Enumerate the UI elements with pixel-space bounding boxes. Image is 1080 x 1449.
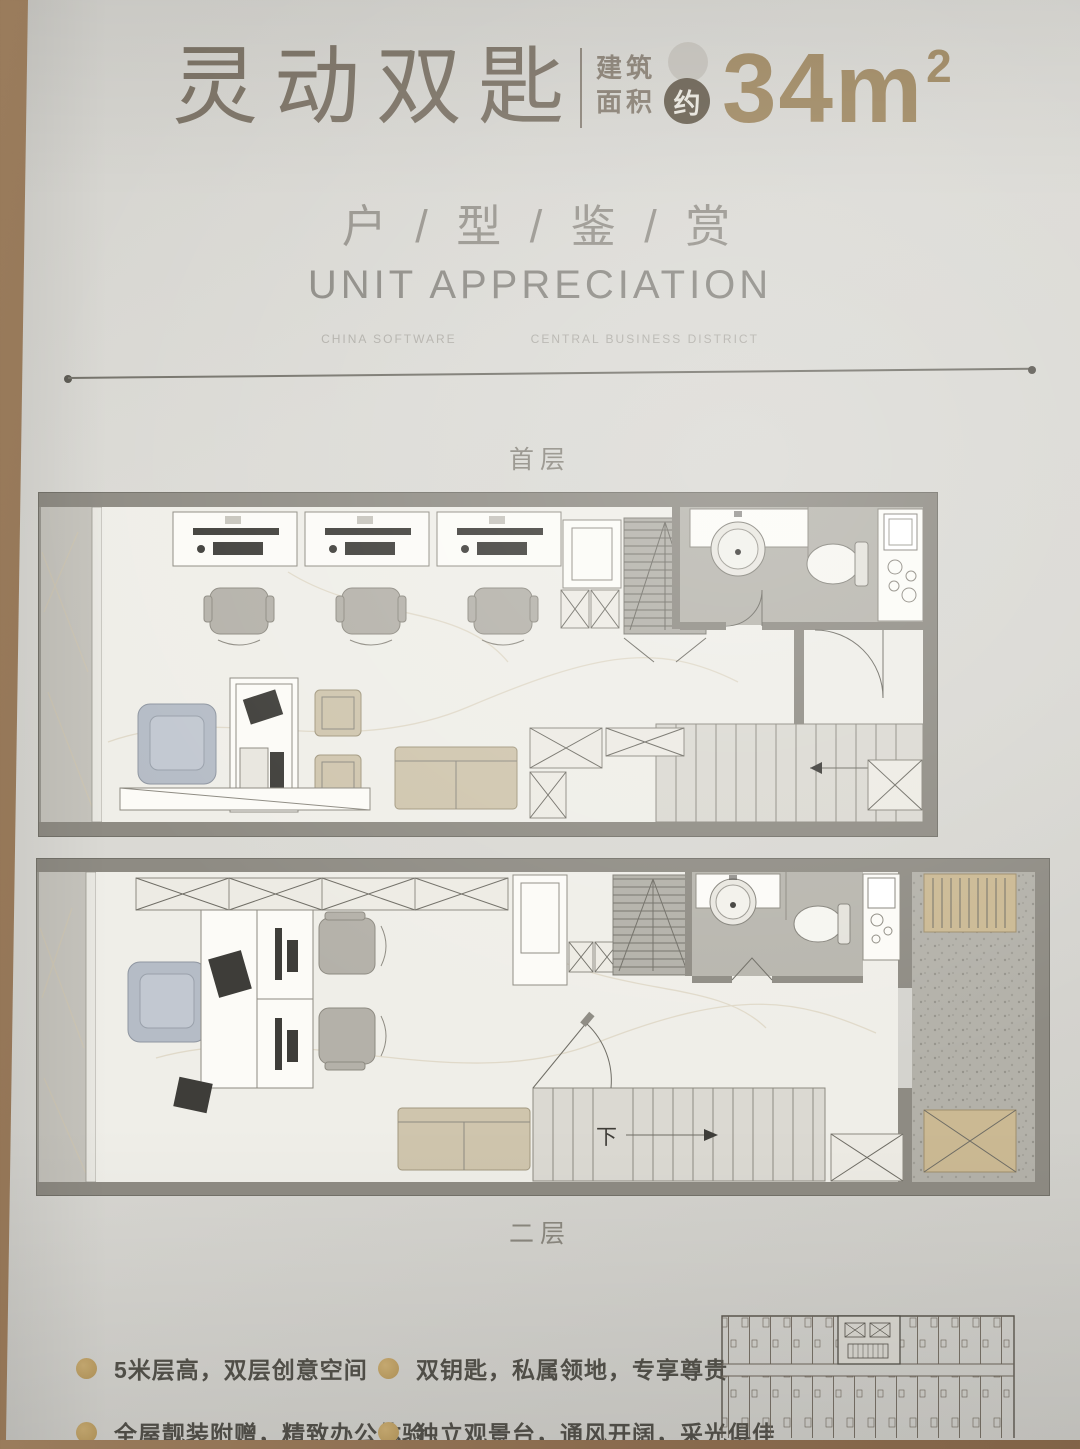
approx-badge: 约 — [664, 78, 710, 124]
area-number: 34m — [722, 33, 924, 143]
bullet-icon — [76, 1422, 97, 1443]
desk-3 — [437, 512, 561, 566]
desk-2 — [305, 512, 429, 566]
header: 灵动双匙 建筑 面积 约 34m2 — [172, 42, 952, 135]
tagline-left: CHINA SOFTWARE — [321, 332, 457, 346]
divider-line — [68, 368, 1032, 379]
sofa — [398, 1108, 530, 1170]
approx-badge-group: 约 — [664, 42, 712, 134]
feature-text: 5米层高，双层创意空间 — [114, 1351, 368, 1385]
area-superscript: 2 — [926, 40, 954, 92]
area-value: 34m2 — [722, 42, 952, 135]
divider-dot-right — [1028, 366, 1036, 374]
title-divider — [580, 48, 582, 128]
kitchen-counter — [878, 509, 923, 621]
feature-item-1: 5米层高，双层创意空间 — [76, 1351, 368, 1385]
subtitle-block: 户 / 型 / 鉴 / 赏 UNIT APPRECIATION CHINA SO… — [0, 190, 1080, 346]
closet — [563, 520, 621, 588]
bullet-icon — [76, 1358, 97, 1379]
toilet — [807, 542, 868, 586]
closet — [513, 875, 567, 985]
armchair — [138, 704, 216, 784]
armchair — [128, 962, 206, 1042]
floor2-plan: 下 — [36, 858, 1050, 1196]
floor2-label: 二层 — [0, 1214, 1080, 1250]
staircase: 下 — [533, 1088, 825, 1181]
floor1-plan-drawing — [38, 492, 938, 837]
sofa — [395, 747, 517, 809]
viewing-terrace — [912, 872, 1035, 1182]
stool-1 — [315, 690, 361, 736]
subtitle-en: UNIT APPRECIATION — [0, 263, 1080, 308]
desk-island — [201, 910, 313, 1088]
storage-x-box-bottom — [831, 1134, 903, 1181]
brochure-page: 灵动双匙 建筑 面积 约 34m2 户 / 型 / 鉴 / 赏 UNIT APP… — [0, 0, 1080, 1440]
key-plan-drawing — [718, 1310, 1018, 1440]
terrace-planter — [924, 1110, 1016, 1172]
stair-down-label: 下 — [596, 1126, 617, 1149]
section-divider — [64, 368, 1036, 384]
feature-item-2: 双钥匙，私属领地，专享尊贵 — [378, 1351, 728, 1385]
low-cabinet — [120, 788, 370, 810]
bullet-icon — [378, 1422, 399, 1443]
floor1-plan — [38, 492, 938, 837]
desk-1 — [173, 512, 297, 566]
storage-row — [136, 878, 508, 910]
page-title: 灵动双匙 — [172, 42, 580, 132]
kitchen-counter — [863, 874, 900, 960]
area-prefix: 建筑 面积 — [596, 52, 656, 120]
feature-item-3: 全屋靓装附赠，精致办公体验 — [76, 1415, 426, 1449]
area-prefix-line2: 面积 — [596, 86, 656, 120]
toilet — [794, 904, 850, 944]
terrace-strip — [38, 500, 102, 830]
badge-light-circle — [668, 42, 708, 82]
terrace-bench — [924, 874, 1016, 932]
building-key-plan — [718, 1310, 1018, 1440]
terrace-strip — [36, 866, 96, 1186]
subtitle-tagline: CHINA SOFTWARE CENTRAL BUSINESS DISTRICT — [0, 332, 1080, 346]
subtitle-cn: 户 / 型 / 鉴 / 赏 — [0, 190, 1080, 255]
unit-row-bottom — [722, 1376, 1014, 1438]
bathroom — [685, 872, 863, 983]
stair-shaft — [613, 875, 693, 975]
area-prefix-line1: 建筑 — [596, 52, 656, 86]
tagline-right: CENTRAL BUSINESS DISTRICT — [531, 332, 759, 346]
bullet-icon — [378, 1358, 399, 1379]
floor1-label: 首层 — [0, 440, 1080, 476]
core — [838, 1316, 900, 1364]
floor2-plan-drawing: 下 — [36, 858, 1050, 1196]
feature-item-4: 独立观景台，通风开阔，采光俱佳 — [378, 1415, 776, 1449]
feature-text: 双钥匙，私属领地，专享尊贵 — [416, 1351, 728, 1385]
